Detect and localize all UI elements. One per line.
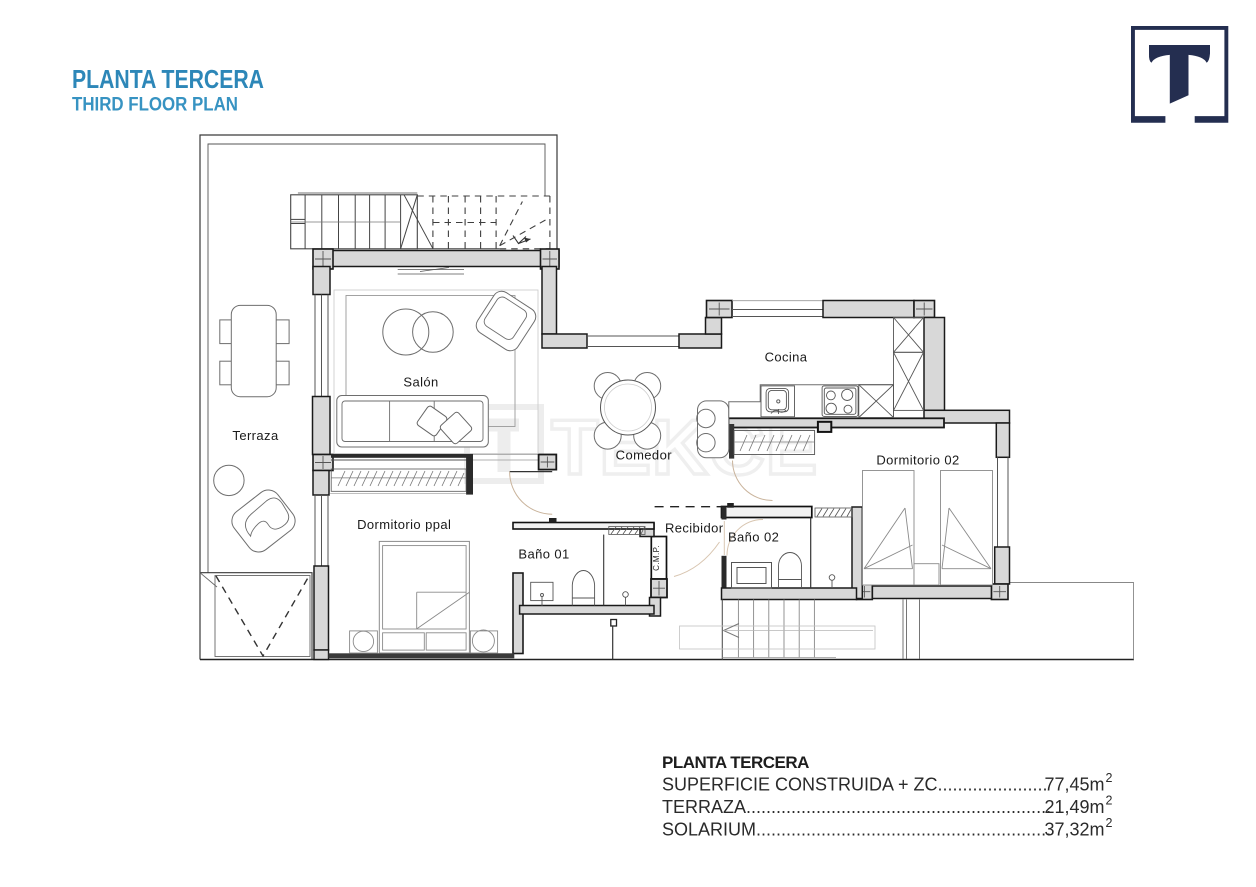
svg-text:Salón: Salón xyxy=(403,375,438,390)
svg-text:Comedor: Comedor xyxy=(616,448,673,463)
svg-text:C.M.P.: C.M.P. xyxy=(652,545,661,571)
svg-text:21,49m: 21,49m xyxy=(1044,797,1104,817)
svg-text:Terraza: Terraza xyxy=(232,428,279,443)
svg-text:Baño 01: Baño 01 xyxy=(518,547,569,562)
svg-text:37,32m: 37,32m xyxy=(1044,820,1104,840)
svg-text:77,45m: 77,45m xyxy=(1044,775,1104,795)
svg-text:2: 2 xyxy=(1106,794,1113,808)
svg-text:Recibidor: Recibidor xyxy=(665,521,724,536)
svg-text:Cocina: Cocina xyxy=(765,350,808,365)
svg-text:PLANTA TERCERA: PLANTA TERCERA xyxy=(72,64,264,94)
svg-text:Dormitorio 02: Dormitorio 02 xyxy=(876,453,959,468)
svg-text:TERRAZA.......................: TERRAZA.................................… xyxy=(662,797,1051,817)
svg-text:2: 2 xyxy=(1106,771,1113,785)
svg-text:Dormitorio ppal: Dormitorio ppal xyxy=(357,517,451,532)
svg-text:SOLARIUM......................: SOLARIUM................................… xyxy=(662,820,1051,840)
svg-text:SUPERFICIE CONSTRUIDA + ZC....: SUPERFICIE CONSTRUIDA + ZC..............… xyxy=(662,775,1048,795)
svg-text:2: 2 xyxy=(1106,816,1113,830)
svg-text:Baño 02: Baño 02 xyxy=(728,530,779,545)
svg-text:PLANTA TERCERA: PLANTA TERCERA xyxy=(662,753,809,772)
svg-text:THIRD FLOOR PLAN: THIRD FLOOR PLAN xyxy=(72,94,238,116)
